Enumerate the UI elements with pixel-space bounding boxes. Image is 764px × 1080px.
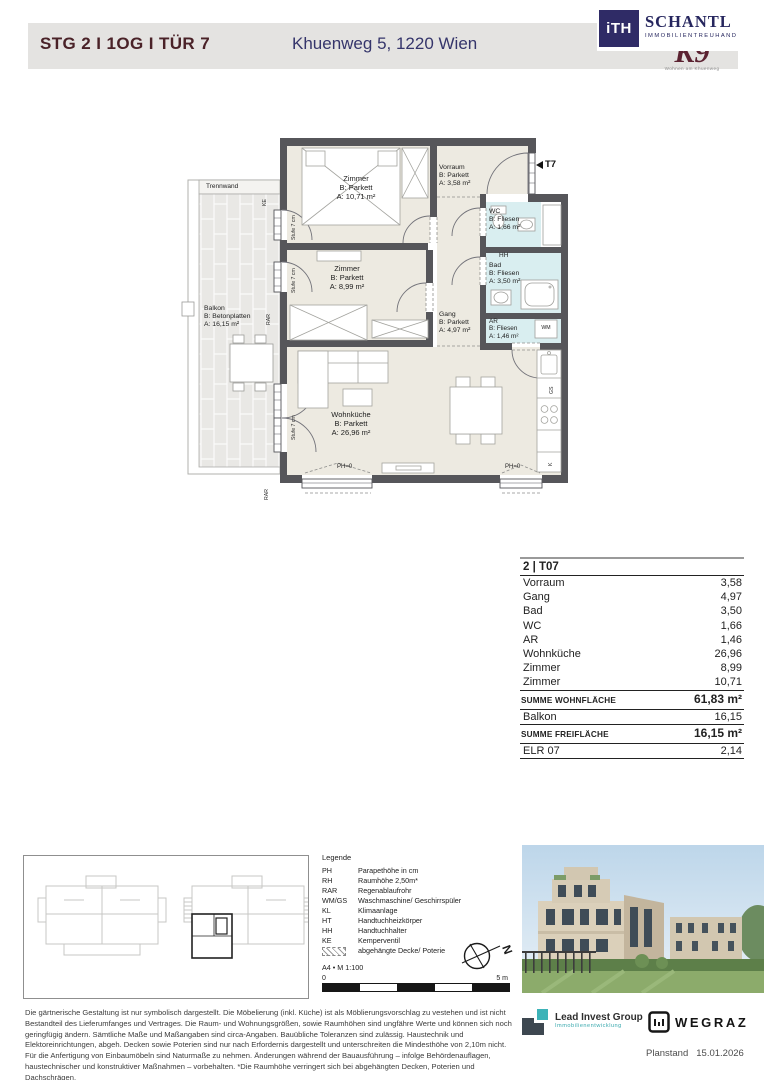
disclaimer-text: Die gärtnerische Gestaltung ist nur symb…: [25, 1008, 519, 1080]
lead-invest-name: Lead Invest Group: [555, 1012, 643, 1023]
lead-invest-logo: Lead Invest Group Immobilienentwicklung: [522, 1008, 643, 1035]
table-row: WC1,66: [520, 619, 744, 633]
key-plan-graphic: [24, 856, 308, 998]
scale-bar: [322, 983, 510, 992]
legend-item: HHHandtuchhalter: [322, 926, 512, 936]
ph0-label: PH=0: [337, 464, 352, 470]
schantl-name: SCHANTL: [645, 12, 737, 32]
hh-label: HH: [499, 252, 508, 259]
room-label-gang: Gang B: Parkett A: 4,97 m²: [439, 311, 470, 335]
lead-invest-icon: [522, 1008, 548, 1035]
ph0-label: PH=0: [505, 464, 520, 470]
room-label-bad: Bad B: Fliesen A: 3,50 m²: [489, 262, 520, 286]
north-label: N: [499, 943, 515, 956]
k-label: K: [548, 462, 554, 466]
ke-label: KE: [262, 199, 268, 206]
room-label-zimmer-1: Zimmer B: Parkett A: 10,71 m²: [309, 174, 403, 201]
entrance-door-label: T7: [545, 159, 556, 170]
plan-status-date: 15.01.2026: [696, 1048, 744, 1059]
entrance-arrow-icon: [536, 161, 543, 169]
sum-living-row: SUMME WOHNFLÄCHE61,83 m²: [520, 690, 744, 710]
table-row: Zimmer8,99: [520, 661, 744, 675]
floor-plan: KE Stufe 7 cm Stufe 7 cm Stufe 7 cm RAR …: [175, 122, 575, 507]
room-label-zimmer-2: Zimmer B: Parkett A: 8,99 m²: [303, 264, 391, 291]
plan-status: Planstand15.01.2026: [646, 1048, 752, 1059]
room-label-vorraum: Vorraum B: Parkett A: 3,58 m²: [439, 164, 470, 188]
table-row: Bad3,50: [520, 604, 744, 618]
schantl-subtitle: IMMOBILIENTREUHAND: [645, 33, 737, 39]
table-row: Wohnküche26,96: [520, 647, 744, 661]
room-label-ar: AR B: Fliesen A: 1,46 m²: [489, 318, 518, 340]
lead-invest-subtitle: Immobilienentwicklung: [555, 1023, 643, 1029]
elr-row: ELR 072,14: [520, 744, 744, 759]
legend-item: RHRaumhöhe 2,50m*: [322, 876, 512, 886]
rar-label: RAR: [264, 489, 270, 500]
legend-title: Legende: [322, 853, 512, 862]
key-plan: [23, 855, 309, 999]
legend-item: WM/GSWaschmaschine/ Geschirrspüler: [322, 896, 512, 906]
sum-free-row: SUMME FREIFLÄCHE16,15 m²: [520, 724, 744, 744]
entrance-marker: T7: [536, 159, 556, 170]
table-row: Zimmer10,71: [520, 675, 744, 689]
rar-label: RAR: [266, 314, 272, 325]
stufe-label: Stufe 7 cm: [291, 215, 297, 240]
area-table: 2 | T07 Vorraum3,58 Gang4,97 Bad3,50 WC1…: [520, 557, 744, 759]
highlighted-unit: [192, 914, 232, 958]
k9-claim: Wohnen am Khuenweg: [640, 66, 744, 71]
table-row: AR1,46: [520, 633, 744, 647]
plan-status-label: Planstand: [646, 1048, 688, 1059]
page-title: STG 2 I 1OG I TÜR 7: [40, 34, 210, 54]
table-row: Vorraum3,58: [520, 576, 744, 590]
wegraz-logo: WEGRAZ: [648, 1011, 748, 1033]
room-label-wohnkueche: Wohnküche B: Parkett A: 26,96 m²: [301, 410, 401, 437]
room-label-wc: WC B: Fliesen A: 1,66 m²: [489, 208, 520, 232]
legend-item: RARRegenablaufrohr: [322, 886, 512, 896]
schantl-logo: iTH SCHANTL IMMOBILIENTREUHAND: [597, 7, 748, 51]
building-render-image: [522, 845, 764, 993]
gs-label: GS: [549, 386, 555, 394]
table-row: Gang4,97: [520, 590, 744, 604]
wegraz-name: WEGRAZ: [675, 1015, 748, 1030]
legend-item: HTHandtuchheizkörper: [322, 916, 512, 926]
room-label-balkon: Balkon B: Betonplatten A: 16,15 m²: [204, 305, 250, 329]
plan-sheet: STG 2 I 1OG I TÜR 7 Khuenweg 5, 1220 Wie…: [0, 0, 764, 1080]
area-table-unit: 2 | T07: [520, 559, 744, 576]
wegraz-icon: [648, 1011, 670, 1033]
ith-logo-icon: iTH: [599, 10, 639, 47]
legend: Legende PHParapethöhe in cm RHRaumhöhe 2…: [322, 853, 512, 992]
table-row: Balkon16,15: [520, 710, 744, 724]
stufe-label: Stufe 7 cm: [291, 268, 297, 293]
stufe-label: Stufe 7 cm: [291, 415, 297, 440]
project-address: Khuenweg 5, 1220 Wien: [292, 34, 477, 54]
suspended-ceiling-icon: [322, 947, 346, 956]
compass-icon: N: [460, 937, 516, 981]
trennwand-label: Trennwand: [206, 183, 238, 190]
legend-item: KLKlimaanlage: [322, 906, 512, 916]
legend-item: PHParapethöhe in cm: [322, 866, 512, 876]
wm-label: WM: [536, 325, 556, 331]
